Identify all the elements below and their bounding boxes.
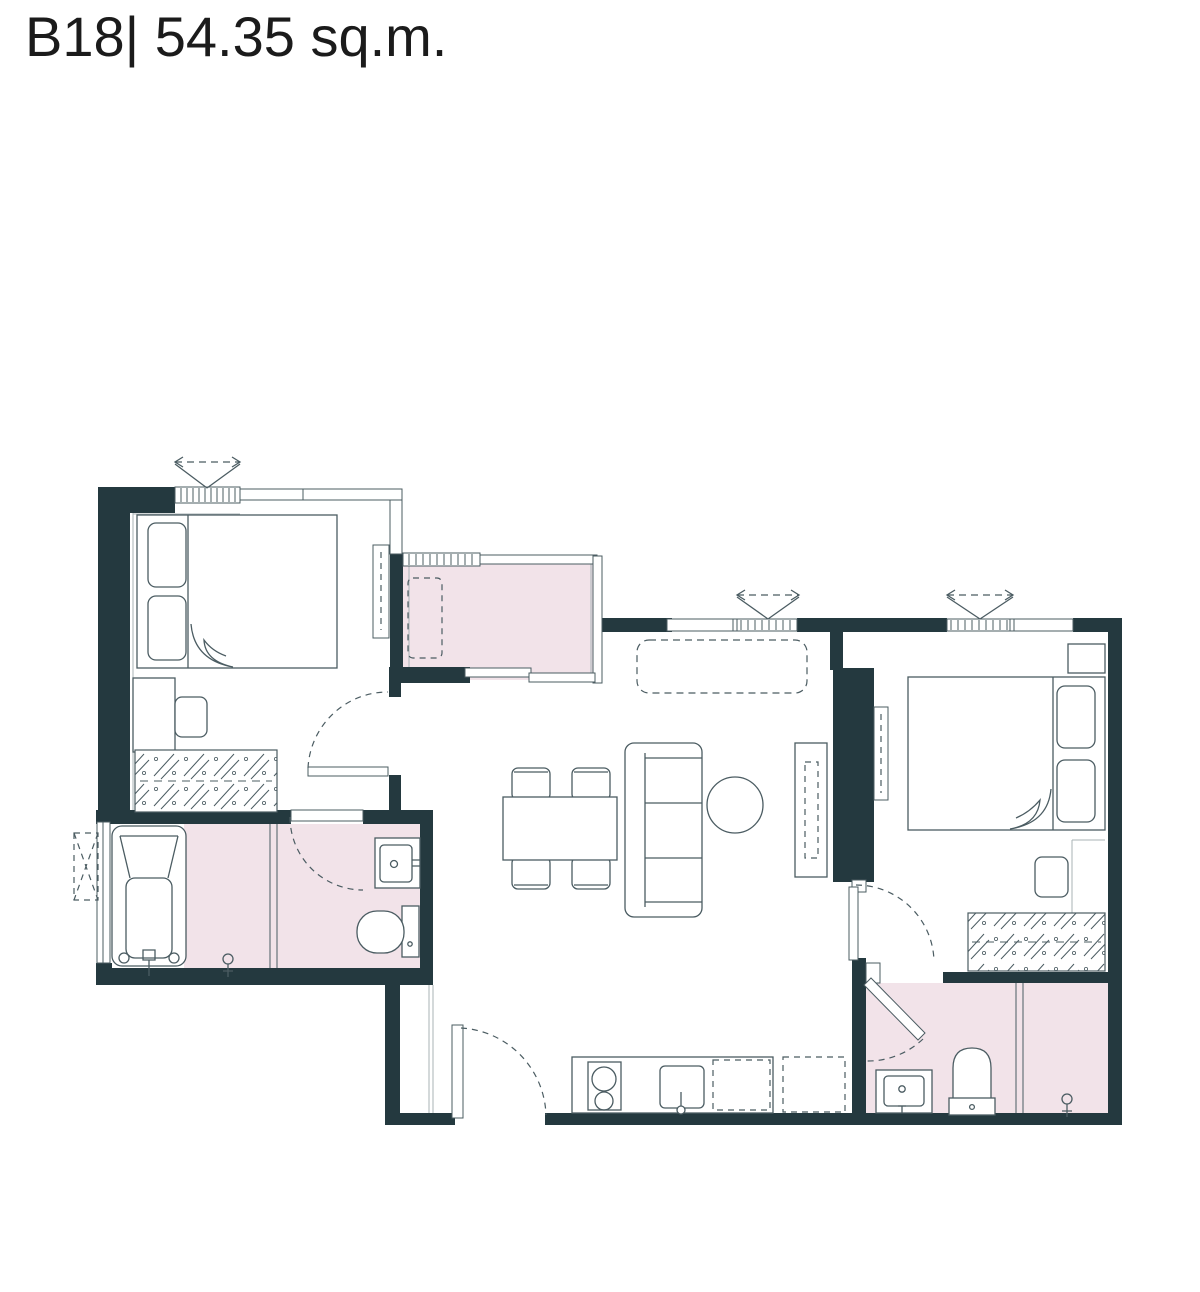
nightstand (1068, 644, 1105, 673)
glazed-wall-corner (390, 500, 402, 554)
toilet (949, 1048, 995, 1115)
dining-chair (512, 768, 550, 800)
bathtub (112, 826, 186, 976)
washbasin (375, 838, 420, 888)
pillow (148, 596, 186, 660)
door-swing (856, 885, 934, 961)
dressing-desk (133, 678, 175, 752)
balcony-railing (480, 555, 597, 564)
kitchen (452, 1025, 845, 1118)
window-opening-symbol (175, 457, 240, 488)
double-bed (908, 677, 1105, 830)
balcony-floor (403, 556, 597, 680)
floor-plan (0, 0, 1200, 1292)
balcony-window (403, 553, 480, 566)
bedroom-1-door (308, 692, 388, 776)
bedroom-2 (849, 644, 1105, 971)
door-leaf (452, 1025, 463, 1118)
bedroom-2-door (849, 880, 934, 961)
wall-tv-dashed (373, 545, 389, 638)
ac-ledge-dashed (74, 833, 98, 900)
coffee-table (707, 777, 763, 833)
dining-chair (512, 857, 550, 889)
door-leaf (308, 767, 388, 776)
pillow (1057, 760, 1095, 822)
wall-tv-dashed (874, 707, 888, 800)
stool (1035, 857, 1068, 897)
bathroom-1-window (97, 822, 110, 963)
window-opening-symbol (737, 590, 799, 619)
bedroom-1-window (175, 487, 240, 503)
dining-table (503, 797, 617, 860)
floor-plan-page: B18| 54.35 sq.m. (0, 0, 1200, 1292)
window-opening-symbol (947, 590, 1013, 619)
door-swing (308, 692, 388, 768)
dining-set (503, 768, 617, 889)
sofa (625, 743, 702, 917)
appliance-dashed (783, 1057, 845, 1112)
glazed-wall (240, 489, 402, 500)
door-leaf (849, 887, 858, 960)
bedroom-1 (133, 515, 389, 812)
pillow (1057, 686, 1095, 748)
door-swing (461, 1028, 546, 1115)
bedroom-2-window (947, 619, 1073, 631)
wardrobe (135, 750, 277, 812)
stool (175, 697, 207, 737)
door-leaf (291, 810, 363, 821)
balcony-railing-side (593, 556, 602, 683)
pillow (148, 523, 186, 587)
toilet (357, 906, 419, 957)
console-cabinet-dashed (637, 640, 807, 693)
dining-chair (572, 768, 610, 800)
living-window (667, 619, 797, 631)
double-bed (137, 515, 337, 668)
tv-console (795, 743, 827, 877)
dining-chair (572, 857, 610, 889)
entrance-door (452, 1025, 546, 1118)
wardrobe (968, 913, 1105, 971)
washbasin (876, 1070, 932, 1113)
